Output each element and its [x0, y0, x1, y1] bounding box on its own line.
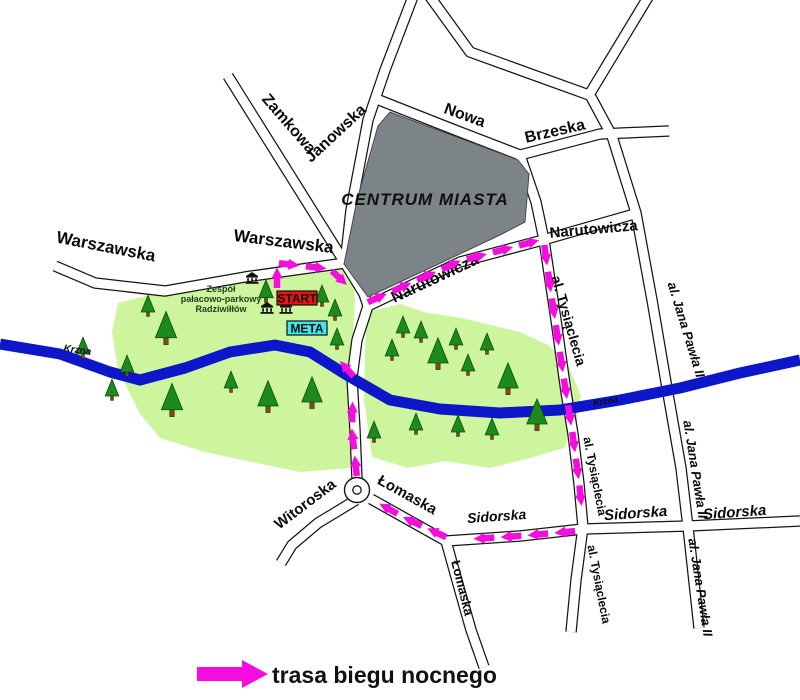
route-arrow: [353, 438, 354, 449]
road-sidorska-surface: [446, 521, 800, 541]
route-arrow: [568, 405, 570, 416]
start-label: START: [277, 292, 317, 306]
tree-icon: [105, 379, 119, 400]
road-jana_pawla: [591, 97, 699, 628]
route-arrow: [572, 432, 573, 443]
palace-park-label-line3: Radziwiłłów: [195, 304, 247, 314]
road-upper_diag: [428, 0, 589, 95]
route-arrow: [392, 287, 402, 291]
street-label-janapawla_n: al. Jana Pawła II: [665, 280, 708, 379]
route-arrow: [467, 256, 478, 259]
route-arrow: [493, 250, 504, 253]
route-arrow: [552, 298, 554, 309]
city-center-label: CENTRUM MIASTA: [341, 190, 509, 209]
route-arrow: [548, 272, 550, 283]
street-label-tysiaclecia_s: al. Tysiąclecia: [584, 544, 613, 625]
map-canvas: CENTRUM MIASTA Zespół pałacowo-parkowy R…: [0, 0, 800, 700]
route-arrow: [306, 266, 317, 267]
route-arrow: [510, 536, 521, 537]
route-arrow: [537, 534, 548, 535]
map-screenshot: CENTRUM MIASTA Zespół pałacowo-parkowy R…: [0, 0, 800, 700]
start-marker: START: [277, 291, 317, 306]
route-arrow: [576, 459, 577, 470]
road-jana_pawla-surface: [591, 97, 699, 628]
route-arrow: [412, 521, 422, 526]
route-arrow: [564, 531, 575, 532]
route-arrow: [560, 352, 562, 363]
palace-park-label-line1: Zespół: [206, 284, 236, 294]
meta-marker: META: [287, 321, 327, 336]
route-arrow: [436, 533, 446, 538]
route-arrow: [483, 538, 494, 539]
road-topright-surface: [589, 0, 650, 95]
legend: trasa biegu nocnego: [197, 660, 497, 688]
street-label-sidorska_mid: Sidorska: [603, 503, 667, 524]
route-arrow: [556, 325, 558, 336]
street-label-narutowicza_e: Narutowicza: [549, 217, 639, 242]
palace-park-label-line2: pałacowo-parkowy: [181, 294, 262, 304]
street-label-witoroska: Witoroska: [271, 475, 340, 533]
street-label-sidorska_w: Sidorska: [467, 506, 527, 526]
route-arrow: [579, 485, 580, 496]
route-arrow: [356, 465, 357, 476]
legend-route-arrow-icon: [197, 660, 268, 688]
route-arrow: [368, 298, 378, 302]
route-arrow: [442, 265, 452, 269]
route-arrow: [417, 276, 427, 280]
route-arrow: [544, 245, 546, 256]
meta-label: META: [290, 322, 323, 336]
street-label-lomaska_s: Łomaska: [448, 559, 476, 618]
legend-label: trasa biegu nocnego: [272, 662, 497, 688]
street-label-warszawska_w: Warszawska: [55, 228, 158, 266]
route-arrow: [279, 263, 290, 264]
roundabout: [345, 478, 370, 503]
park-area-east: [364, 304, 581, 468]
route-arrow: [519, 243, 530, 246]
route-arrow: [564, 379, 566, 390]
